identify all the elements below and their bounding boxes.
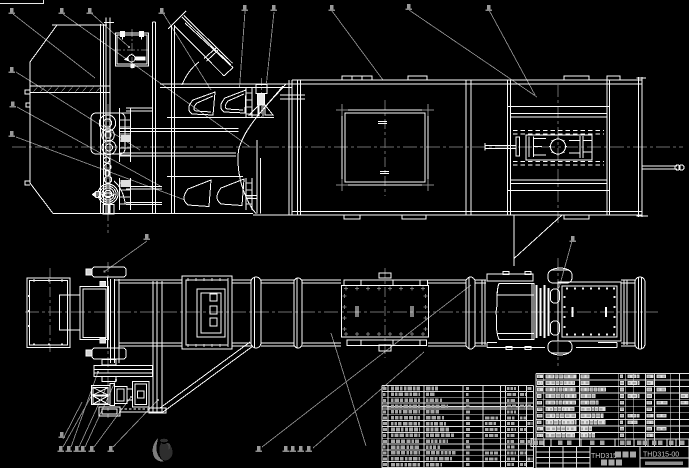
svg-text:THD315-00: THD315-00 [643,452,679,459]
svg-text:THD315: THD315 [591,453,617,460]
